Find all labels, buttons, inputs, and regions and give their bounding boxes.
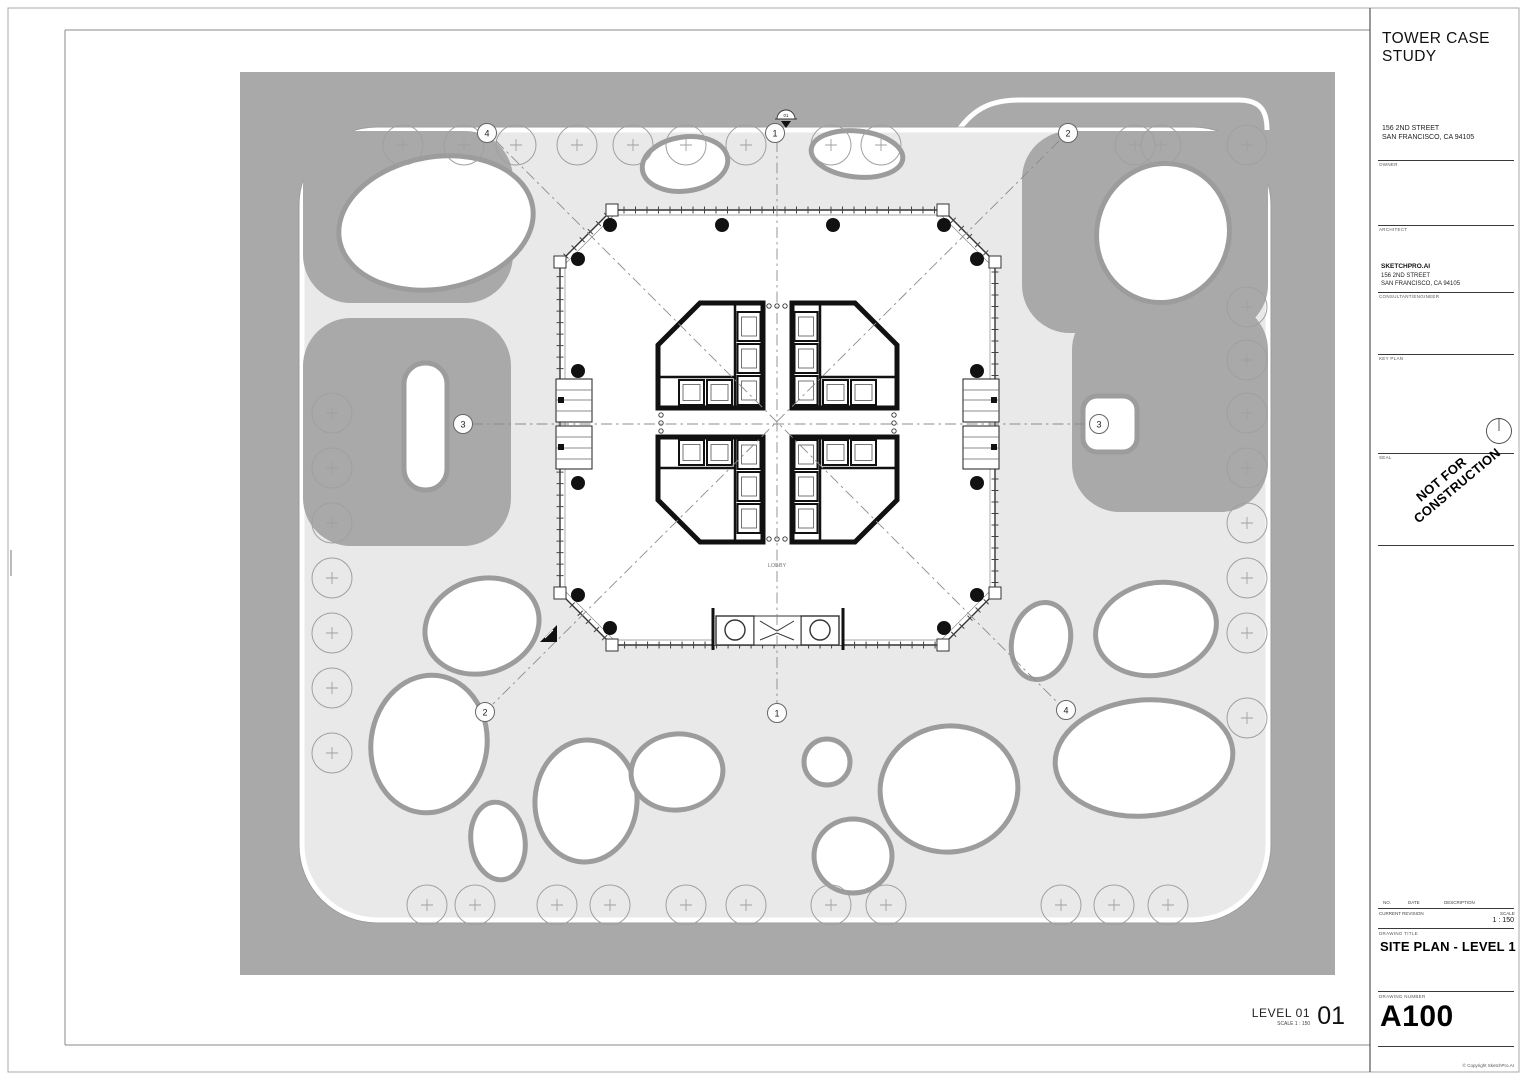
svg-text:3: 3	[1096, 419, 1101, 429]
scale-value: 1 : 150	[1440, 917, 1514, 924]
column-dot	[571, 364, 585, 378]
svg-text:1: 1	[772, 128, 777, 138]
project-address: 156 2ND STREET SAN FRANCISCO, CA 94105	[1382, 124, 1474, 142]
landscape-blob	[814, 819, 892, 893]
column-dot	[970, 588, 984, 602]
drawing-sheet: 41233214 LOBBY 01 TOWER C	[0, 0, 1527, 1080]
column-dot	[970, 252, 984, 266]
grid-bubble: 3	[454, 415, 473, 434]
svg-text:3: 3	[460, 419, 465, 429]
grid-bubble: 1	[768, 704, 787, 723]
current-revision-label: CURRENT REVISION	[1379, 911, 1424, 916]
consultant-label: CONSULTANT/ENGINEER	[1379, 294, 1439, 299]
divider	[1378, 991, 1514, 992]
divider	[1378, 908, 1514, 909]
drawing-number: A100	[1380, 1000, 1454, 1034]
architect-label: ARCHITECT	[1379, 227, 1407, 232]
copyright-text: © Copyright SketchPro.AI	[1378, 1063, 1514, 1068]
svg-text:01: 01	[783, 113, 789, 118]
column-dot	[603, 621, 617, 635]
lobby-label: LOBBY	[768, 563, 787, 569]
site-plan-drawing: 41233214 LOBBY 01	[0, 0, 1527, 1080]
column-dot	[937, 621, 951, 635]
svg-text:4: 4	[484, 128, 489, 138]
owner-label: OWNER	[1379, 162, 1398, 167]
rev-no-label: NO.	[1383, 900, 1391, 905]
viewport-scale: SCALE 1 : 150	[1252, 1021, 1310, 1027]
project-title: TOWER CASE STUDY	[1382, 30, 1527, 66]
drawing-number-label: DRAWING NUMBER	[1379, 994, 1426, 999]
drawing-title-label: DRAWING TITLE	[1379, 931, 1418, 936]
grid-bubble: 3	[1090, 415, 1109, 434]
column-dot	[970, 476, 984, 490]
address-line2: SAN FRANCISCO, CA 94105	[1382, 133, 1474, 142]
column-dot	[970, 364, 984, 378]
grid-bubble: 2	[1059, 124, 1078, 143]
divider	[1378, 225, 1514, 226]
column-dot	[571, 588, 585, 602]
drawing-title: SITE PLAN - LEVEL 1	[1380, 939, 1516, 954]
svg-text:2: 2	[1065, 128, 1070, 138]
divider	[1378, 928, 1514, 929]
rev-date-label: DATE	[1408, 900, 1420, 905]
svg-text:1: 1	[774, 708, 779, 718]
architect-address: 156 2ND STREET SAN FRANCISCO, CA 94105	[1381, 272, 1460, 288]
divider	[1378, 1046, 1514, 1047]
address-line1: 156 2ND STREET	[1382, 124, 1474, 133]
divider	[1378, 292, 1514, 293]
viewport-name: LEVEL 01	[1252, 1006, 1310, 1020]
column-dot	[937, 218, 951, 232]
viewport-number: 01	[1317, 1005, 1345, 1027]
scale-label: SCALE	[1500, 911, 1515, 916]
divider	[1378, 160, 1514, 161]
grid-bubble: 1	[766, 124, 785, 143]
landscape-blob	[804, 739, 850, 785]
grid-bubble: 4	[1057, 701, 1076, 720]
column-dot	[571, 476, 585, 490]
north-arrow-icon	[1487, 419, 1512, 444]
tower-footprint	[554, 204, 1001, 651]
column-dot	[715, 218, 729, 232]
landscape-blob	[404, 363, 447, 490]
divider	[1378, 545, 1514, 546]
grid-bubble: 4	[478, 124, 497, 143]
column-dot	[571, 252, 585, 266]
svg-text:2: 2	[482, 707, 487, 717]
divider	[1378, 354, 1514, 355]
column-dot	[826, 218, 840, 232]
seal-label: SEAL	[1379, 455, 1392, 460]
architect-name: SKETCHPRO.AI	[1381, 263, 1430, 270]
architect-address1: 156 2ND STREET	[1381, 272, 1460, 280]
viewport-label: LEVEL 01 SCALE 1 : 150 01	[1045, 1005, 1345, 1027]
plot-stamp-text	[10, 550, 12, 576]
keyplan-label: KEY PLAN	[1379, 356, 1403, 361]
rev-description-label: DESCRIPTION	[1444, 900, 1475, 905]
main-entrance	[712, 608, 843, 650]
architect-address2: SAN FRANCISCO, CA 94105	[1381, 280, 1460, 288]
grid-bubble: 2	[476, 703, 495, 722]
svg-text:4: 4	[1063, 705, 1068, 715]
column-dot	[603, 218, 617, 232]
